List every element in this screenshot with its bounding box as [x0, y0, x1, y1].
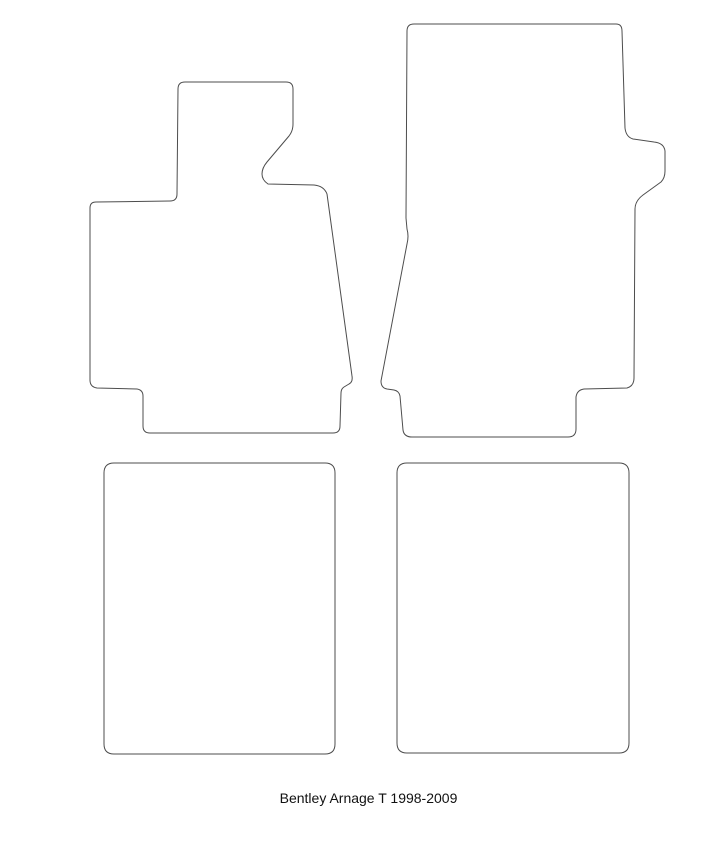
front-right-mat-outline [381, 24, 665, 437]
mat-set-diagram: Bentley Arnage T 1998-2009 [0, 0, 723, 853]
rear-left-mat-outline [104, 463, 335, 754]
rear-right-mat-outline [397, 463, 629, 753]
mat-outlines-svg [0, 0, 723, 853]
front-left-mat-outline [90, 82, 352, 433]
product-caption: Bentley Arnage T 1998-2009 [0, 791, 723, 806]
